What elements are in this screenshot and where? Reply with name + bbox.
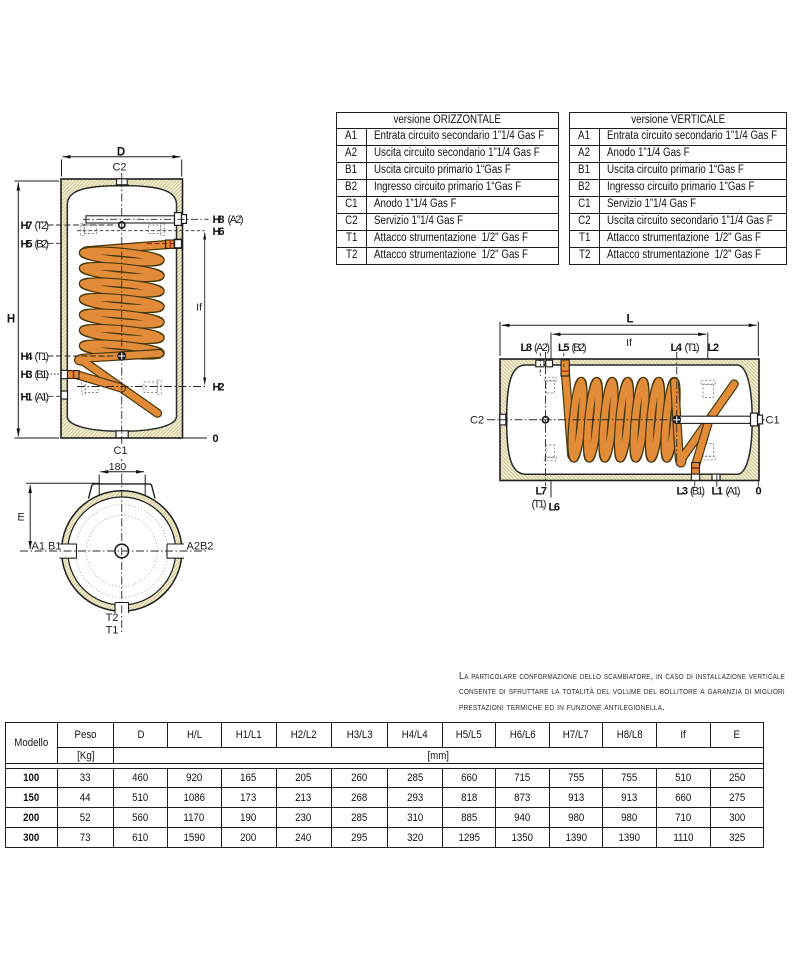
svg-text:A1 B1: A1 B1 xyxy=(32,541,62,553)
svg-text:C1: C1 xyxy=(766,415,780,427)
svg-text:D: D xyxy=(117,146,125,158)
svg-text:C2: C2 xyxy=(112,162,126,174)
svg-text:L7: L7 xyxy=(536,486,548,498)
svg-text:(B2): (B2) xyxy=(572,342,587,354)
svg-text:(A2): (A2) xyxy=(534,342,550,354)
svg-text:If: If xyxy=(626,337,632,349)
svg-text:C2: C2 xyxy=(470,415,484,427)
svg-text:(A1): (A1) xyxy=(726,486,741,498)
svg-text:H5: H5 xyxy=(21,238,33,250)
svg-text:(T2): (T2) xyxy=(35,220,50,232)
svg-text:L4: L4 xyxy=(671,342,683,354)
svg-text:H2: H2 xyxy=(213,382,225,394)
svg-text:T1: T1 xyxy=(106,625,119,637)
svg-text:L3: L3 xyxy=(677,486,689,498)
svg-text:L5: L5 xyxy=(558,342,570,354)
svg-text:A2B2: A2B2 xyxy=(187,541,214,553)
svg-text:180: 180 xyxy=(109,461,127,473)
svg-text:T2: T2 xyxy=(106,612,119,624)
svg-text:H4: H4 xyxy=(21,351,34,363)
svg-text:L8: L8 xyxy=(521,342,533,354)
svg-text:(B1): (B1) xyxy=(690,486,705,498)
svg-text:(A2): (A2) xyxy=(228,214,244,226)
svg-text:(B2): (B2) xyxy=(35,238,50,250)
svg-text:C1: C1 xyxy=(113,445,127,457)
svg-text:(B1): (B1) xyxy=(35,369,50,381)
svg-text:0: 0 xyxy=(756,486,762,498)
svg-text:0: 0 xyxy=(213,433,219,445)
svg-text:(T1): (T1) xyxy=(532,499,547,511)
svg-text:H7: H7 xyxy=(21,220,33,232)
svg-text:H3: H3 xyxy=(21,369,33,381)
svg-text:(T1): (T1) xyxy=(685,342,700,354)
svg-text:H8: H8 xyxy=(213,214,225,226)
svg-text:H: H xyxy=(7,314,15,326)
svg-text:H1: H1 xyxy=(21,391,33,403)
svg-text:If: If xyxy=(196,302,202,314)
svg-text:(A1): (A1) xyxy=(35,391,50,403)
svg-text:L: L xyxy=(626,314,633,326)
svg-text:H6: H6 xyxy=(213,226,225,238)
svg-text:L1: L1 xyxy=(712,486,724,498)
svg-text:(T1): (T1) xyxy=(35,351,50,363)
svg-text:L2: L2 xyxy=(708,342,720,354)
svg-text:L6: L6 xyxy=(549,502,561,514)
svg-text:E: E xyxy=(17,512,24,524)
